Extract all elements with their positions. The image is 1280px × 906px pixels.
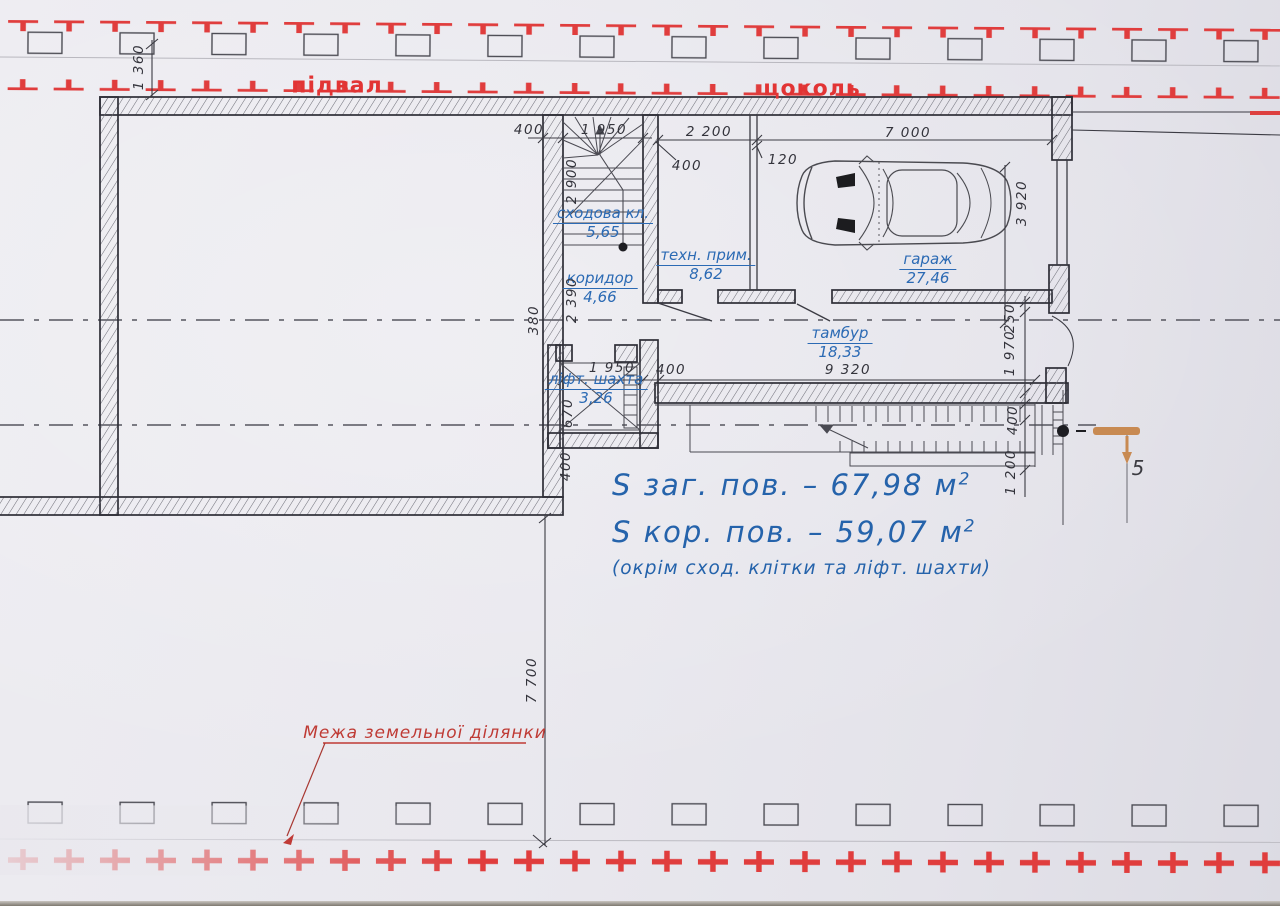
dim-lift-670: 670 xyxy=(560,398,576,428)
dim-corridor-h: 2 390 xyxy=(564,277,580,323)
dim-wall-400: 400 xyxy=(514,122,544,138)
dim-stair-width: 1 950 xyxy=(581,122,627,138)
boundary-row-bottom xyxy=(0,788,1280,878)
axis-point xyxy=(619,243,628,252)
dim-plot-7700: 7 700 xyxy=(524,657,540,703)
area-summary: S заг. пов. – 67,98 м2 S кор. пов. – 59,… xyxy=(612,468,991,579)
axis-point xyxy=(1057,425,1069,437)
dim-right-400: 400 xyxy=(1005,405,1021,435)
room-label-stair: сходова кл. 5,65 xyxy=(553,206,653,241)
dim-partition-120: 120 xyxy=(768,152,798,168)
fence-post-icon xyxy=(0,20,1280,99)
room-label-tech: техн. прим. 8,62 xyxy=(656,248,755,283)
garage-door-icon xyxy=(1057,160,1067,265)
entry-marker-label: 5 xyxy=(1132,456,1145,480)
dim-plot-offset: 1 360 xyxy=(131,44,147,90)
area-usable: S кор. пов. – 59,07 м2 xyxy=(612,515,991,549)
dim-lift-400: 400 xyxy=(656,362,686,378)
dim-garage-width: 7 000 xyxy=(885,125,931,141)
dim-wall-250: 250 xyxy=(1002,303,1018,333)
boundary-row-top xyxy=(0,20,1280,99)
floor-plan-photo: підвал цоколь сходова кл. 5,65 коридор 4… xyxy=(0,0,1280,906)
floor-label-basement: підвал xyxy=(291,74,382,99)
room-label-garage: гараж 27,46 xyxy=(899,252,956,287)
car-icon xyxy=(797,156,1011,250)
plan-drawing xyxy=(0,0,1280,906)
room-label-tambour: тамбур 18,33 xyxy=(808,326,873,361)
dim-garage-depth: 3 920 xyxy=(1014,180,1030,226)
dim-stair-height: 2 900 xyxy=(564,158,580,204)
dim-tambour-len: 9 320 xyxy=(825,362,871,378)
photo-edge xyxy=(0,901,1280,906)
boundary-label: Межа земельної ділянки xyxy=(303,723,547,743)
dim-shaft-400: 400 xyxy=(558,451,574,481)
dim-wall-380: 380 xyxy=(526,305,542,335)
floor-label-ground: цоколь xyxy=(763,77,861,102)
dim-tech-400: 400 xyxy=(672,158,702,174)
dim-lift-width: 1 950 xyxy=(589,360,635,376)
dim-tambour-depth: 1 970 xyxy=(1002,330,1018,376)
dim-tech-width: 2 200 xyxy=(686,124,732,140)
area-note: (окрім сход. клітки та ліфт. шахти) xyxy=(612,558,991,579)
area-total: S заг. пов. – 67,98 м2 xyxy=(612,468,991,502)
dim-stair-1200: 1 200 xyxy=(1003,449,1019,495)
